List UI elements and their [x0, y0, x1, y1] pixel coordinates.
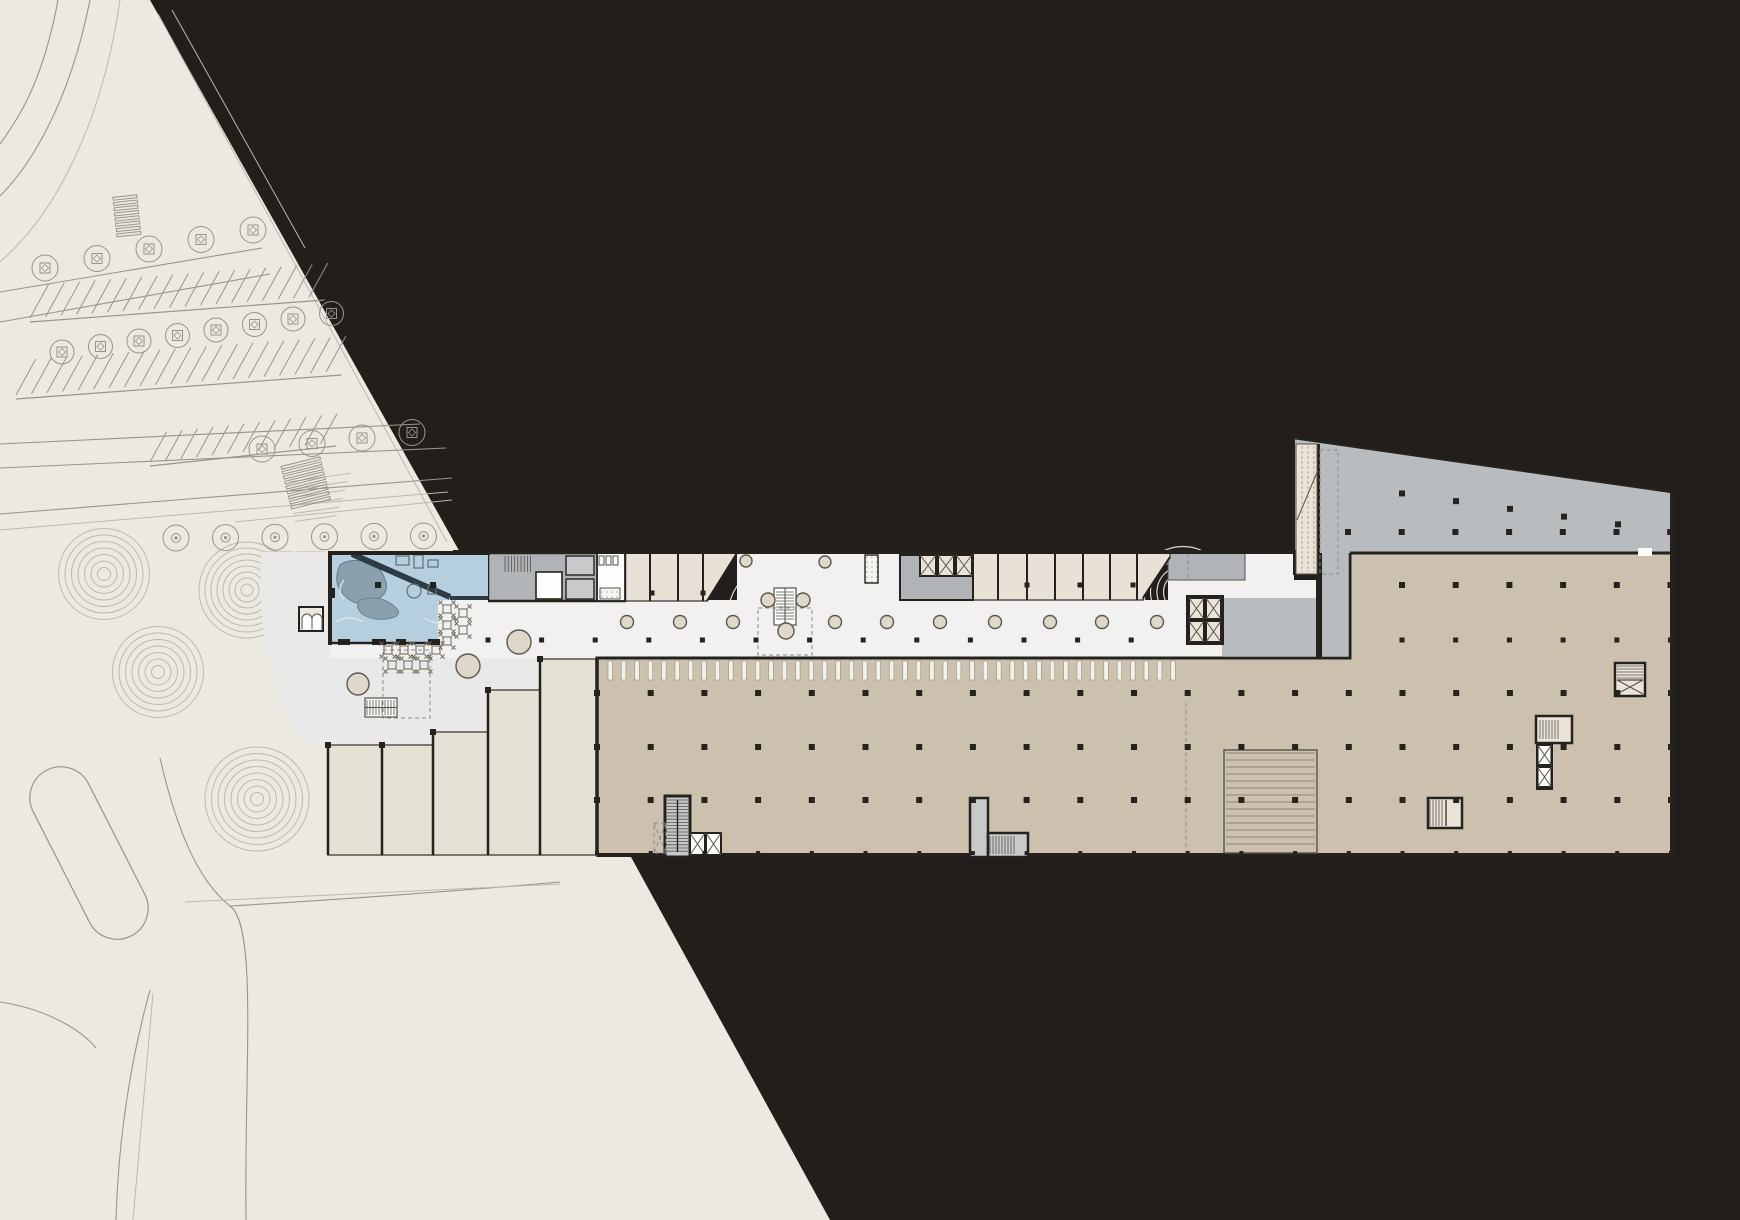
column-dot: [864, 851, 868, 855]
column-dot: [648, 744, 654, 750]
column-dot: [1561, 797, 1567, 803]
skylight-slot: [755, 661, 760, 680]
column-dot: [1561, 690, 1567, 696]
column-dot: [809, 690, 815, 696]
column-dot: [1560, 529, 1566, 535]
planter-circle: [456, 654, 480, 678]
column-dot: [970, 690, 976, 696]
planter-circle: [819, 556, 831, 568]
column-dot: [809, 797, 815, 803]
column-dot: [1454, 851, 1458, 855]
planter-circle: [881, 616, 894, 629]
terrace-unit: [540, 659, 597, 855]
skylight-slot: [930, 661, 935, 680]
column-dot: [1453, 638, 1458, 643]
retail-strip-b: [973, 553, 1170, 600]
column-dot: [1131, 583, 1136, 588]
column-dot: [594, 744, 600, 750]
column-dot: [1238, 744, 1244, 750]
skylight-slot: [621, 661, 626, 680]
column-dot: [1507, 638, 1512, 643]
column-dot: [539, 638, 544, 643]
column-dot: [861, 638, 866, 643]
column-dot: [1346, 690, 1352, 696]
column-dot: [1346, 797, 1352, 803]
floor-plan-drawing: [0, 0, 1740, 1220]
column-dot: [1668, 690, 1674, 696]
skylight-slot-band: [608, 661, 1175, 680]
skylight-slot: [608, 661, 613, 680]
skylight-slot: [970, 661, 975, 680]
column-dot: [754, 638, 759, 643]
skylight-slot: [1157, 661, 1162, 680]
column-dot: [648, 797, 654, 803]
skylight-slot: [863, 661, 868, 680]
skylight-slot: [822, 661, 827, 680]
column-dot: [594, 690, 600, 696]
column-dot: [1345, 529, 1351, 535]
back-of-house: [473, 553, 625, 606]
planter-circle: [796, 593, 810, 607]
planter-circle: [1151, 616, 1164, 629]
column-dot: [1022, 638, 1027, 643]
skylight-slot: [796, 661, 801, 680]
column-dot: [1453, 690, 1459, 696]
column-dot: [1614, 690, 1620, 696]
kiosk-room: [865, 555, 878, 583]
parking-stall-line: [309, 263, 328, 297]
column-dot: [1078, 583, 1083, 588]
column-dot: [595, 851, 599, 855]
column-dot: [1077, 690, 1083, 696]
column-dot: [1507, 690, 1513, 696]
skylight-slot: [702, 661, 707, 680]
planter-circle: [1096, 616, 1109, 629]
column-dot: [1507, 797, 1513, 803]
skylight-slot: [836, 661, 841, 680]
column-dot: [1560, 582, 1566, 588]
column-dot: [755, 797, 761, 803]
column-dot: [1401, 851, 1405, 855]
column-dot: [646, 638, 651, 643]
skylight-slot: [943, 661, 948, 680]
planter-circle: [621, 616, 634, 629]
skylight-slot: [688, 661, 693, 680]
column-dot: [1667, 529, 1673, 535]
column-dot: [756, 851, 760, 855]
column-dot: [916, 744, 922, 750]
column-dot: [1185, 797, 1191, 803]
skylight-slot: [849, 661, 854, 680]
column-dot: [701, 690, 707, 696]
tree-center: [323, 535, 326, 538]
planter-circle: [740, 555, 752, 567]
skylight-slot: [742, 661, 747, 680]
column-dot: [1131, 690, 1137, 696]
east-gray-zone: [1222, 598, 1318, 658]
column-dot: [1668, 638, 1673, 643]
tree-center: [273, 536, 276, 539]
column-dot: [1347, 851, 1351, 855]
arched-wall: [299, 607, 323, 631]
column-dot: [810, 851, 814, 855]
skylight-slot: [1117, 661, 1122, 680]
column-dot: [1399, 582, 1405, 588]
wing-link: [1322, 553, 1350, 658]
skylight-slot: [1037, 661, 1042, 680]
skylight-slot: [1023, 661, 1028, 680]
column-dot: [1615, 521, 1621, 527]
column-dot: [701, 744, 707, 750]
north-gray-rooms: [1168, 553, 1245, 580]
skylight-slot: [1050, 661, 1055, 680]
mall-ne-bay: [1245, 553, 1294, 580]
skylight-slot: [662, 661, 667, 680]
column-dot: [916, 690, 922, 696]
column-dot: [1024, 690, 1030, 696]
column-dot: [1452, 529, 1458, 535]
planter-circle: [507, 630, 531, 654]
planter-circle: [829, 616, 842, 629]
tree-trunk: [408, 429, 415, 436]
skylight-slot: [1144, 661, 1149, 680]
skylight-slot: [648, 661, 653, 680]
skylight-slot: [1090, 661, 1095, 680]
column-dot: [1132, 851, 1136, 855]
column-dot: [1129, 638, 1134, 643]
column-dot: [1614, 744, 1620, 750]
column-dot: [1400, 797, 1406, 803]
skylight-slot: [1064, 661, 1069, 680]
column-dot: [1453, 744, 1459, 750]
column-dot: [1399, 529, 1405, 535]
skylight-slot: [635, 661, 640, 680]
column-dot: [701, 797, 707, 803]
column-dot: [809, 744, 815, 750]
column-dot: [701, 591, 706, 596]
column-dot: [1668, 744, 1674, 750]
column-dot: [863, 690, 869, 696]
column-dot: [1292, 797, 1298, 803]
terrace-unit: [488, 690, 540, 855]
column-dot: [1453, 498, 1459, 504]
wing-door-gap: [1638, 548, 1652, 556]
column-dot: [1186, 851, 1190, 855]
column-dot: [1561, 744, 1567, 750]
planter-circle: [674, 616, 687, 629]
column-dot: [325, 742, 331, 748]
tree-canopy: [399, 420, 425, 446]
planter-circle: [934, 616, 947, 629]
column-dot: [1025, 583, 1030, 588]
skylight-slot: [997, 661, 1002, 680]
column-dot: [379, 742, 385, 748]
column-dot: [1346, 744, 1352, 750]
column-dot: [648, 690, 654, 696]
column-dot: [863, 797, 869, 803]
column-dot: [971, 851, 975, 855]
column-dot: [755, 690, 761, 696]
column-dot: [1025, 851, 1029, 855]
tree-center: [224, 536, 227, 539]
column-dot: [1614, 529, 1620, 535]
column-dot: [1292, 690, 1298, 696]
column-dot: [1507, 744, 1513, 750]
planter-circle: [989, 616, 1002, 629]
column-dot: [486, 638, 491, 643]
column-dot: [970, 797, 976, 803]
column-dot: [1508, 851, 1512, 855]
column-dot: [1614, 582, 1620, 588]
column-dot: [650, 591, 655, 596]
skylight-slot: [916, 661, 921, 680]
column-dot: [1238, 690, 1244, 696]
column-dot: [1238, 797, 1244, 803]
column-dot: [1400, 690, 1406, 696]
terrace-unit: [433, 732, 488, 855]
column-dot: [1506, 582, 1512, 588]
skylight-slot: [809, 661, 814, 680]
skylight-slot: [1010, 661, 1015, 680]
column-dot: [1131, 744, 1137, 750]
column-dot: [1400, 638, 1405, 643]
column-dot: [968, 638, 973, 643]
column-dot: [970, 744, 976, 750]
skylight-slot: [983, 661, 988, 680]
column-dot: [1400, 744, 1406, 750]
terrace-unit: [328, 745, 382, 855]
planter-circle: [1044, 616, 1057, 629]
tree-center: [422, 534, 425, 537]
column-dot: [1077, 797, 1083, 803]
column-dot: [1668, 582, 1674, 588]
elevator-bank-east: [1186, 595, 1224, 645]
tree-center: [174, 536, 177, 539]
skylight-slot: [782, 661, 787, 680]
column-dot: [1615, 851, 1619, 855]
column-dot: [1185, 690, 1191, 696]
tree-center: [372, 535, 375, 538]
column-dot: [1024, 797, 1030, 803]
column-dot: [1507, 506, 1513, 512]
planter-circle: [727, 616, 740, 629]
skylight-slot: [1171, 661, 1176, 680]
column-dot: [1293, 851, 1297, 855]
skylight-slot: [1077, 661, 1082, 680]
column-dot: [1292, 744, 1298, 750]
column-dot: [807, 638, 812, 643]
skylight-slot: [956, 661, 961, 680]
column-dot: [755, 744, 761, 750]
column-dot: [700, 638, 705, 643]
column-dot: [1453, 582, 1459, 588]
skylight-slot: [889, 661, 894, 680]
column-dot: [594, 797, 600, 803]
skylight-slot: [769, 661, 774, 680]
column-dot: [1024, 744, 1030, 750]
column-dot: [485, 687, 491, 693]
terrace-unit: [382, 745, 433, 855]
column-dot: [1131, 797, 1137, 803]
column-dot: [1077, 744, 1083, 750]
column-dot: [1614, 797, 1620, 803]
column-dot: [430, 729, 436, 735]
column-dot: [863, 744, 869, 750]
column-dot: [1506, 529, 1512, 535]
skylight-slot: [715, 661, 720, 680]
north-wing-deck: [1294, 438, 1672, 553]
planter-circle: [347, 673, 369, 695]
skylight-slot: [675, 661, 680, 680]
column-dot: [914, 638, 919, 643]
column-dot: [1561, 638, 1566, 643]
column-dot: [1561, 514, 1567, 520]
retail-strip-a: [625, 553, 737, 601]
planter-circle: [778, 623, 794, 639]
column-dot: [537, 656, 543, 662]
column-dot: [1399, 490, 1405, 496]
tree-trunk: [328, 310, 335, 317]
column-dot: [593, 638, 598, 643]
skylight-slot: [1104, 661, 1109, 680]
column-dot: [702, 851, 706, 855]
skylight-slot: [729, 661, 734, 680]
column-dot: [917, 851, 921, 855]
column-dot: [1669, 851, 1673, 855]
column-dot: [1239, 851, 1243, 855]
column-dot: [1453, 797, 1459, 803]
skylight-slot: [1131, 661, 1136, 680]
column-dot: [1185, 744, 1191, 750]
column-dot: [1614, 638, 1619, 643]
skylight-slot: [876, 661, 881, 680]
floor-plan-canvas: [0, 0, 1740, 1220]
skylight-slot: [903, 661, 908, 680]
column-dot: [1078, 851, 1082, 855]
column-dot: [649, 851, 653, 855]
column-dot: [1562, 851, 1566, 855]
column-dot: [916, 797, 922, 803]
column-dot: [1668, 797, 1674, 803]
column-dot: [1075, 638, 1080, 643]
planter-circle: [761, 593, 775, 607]
